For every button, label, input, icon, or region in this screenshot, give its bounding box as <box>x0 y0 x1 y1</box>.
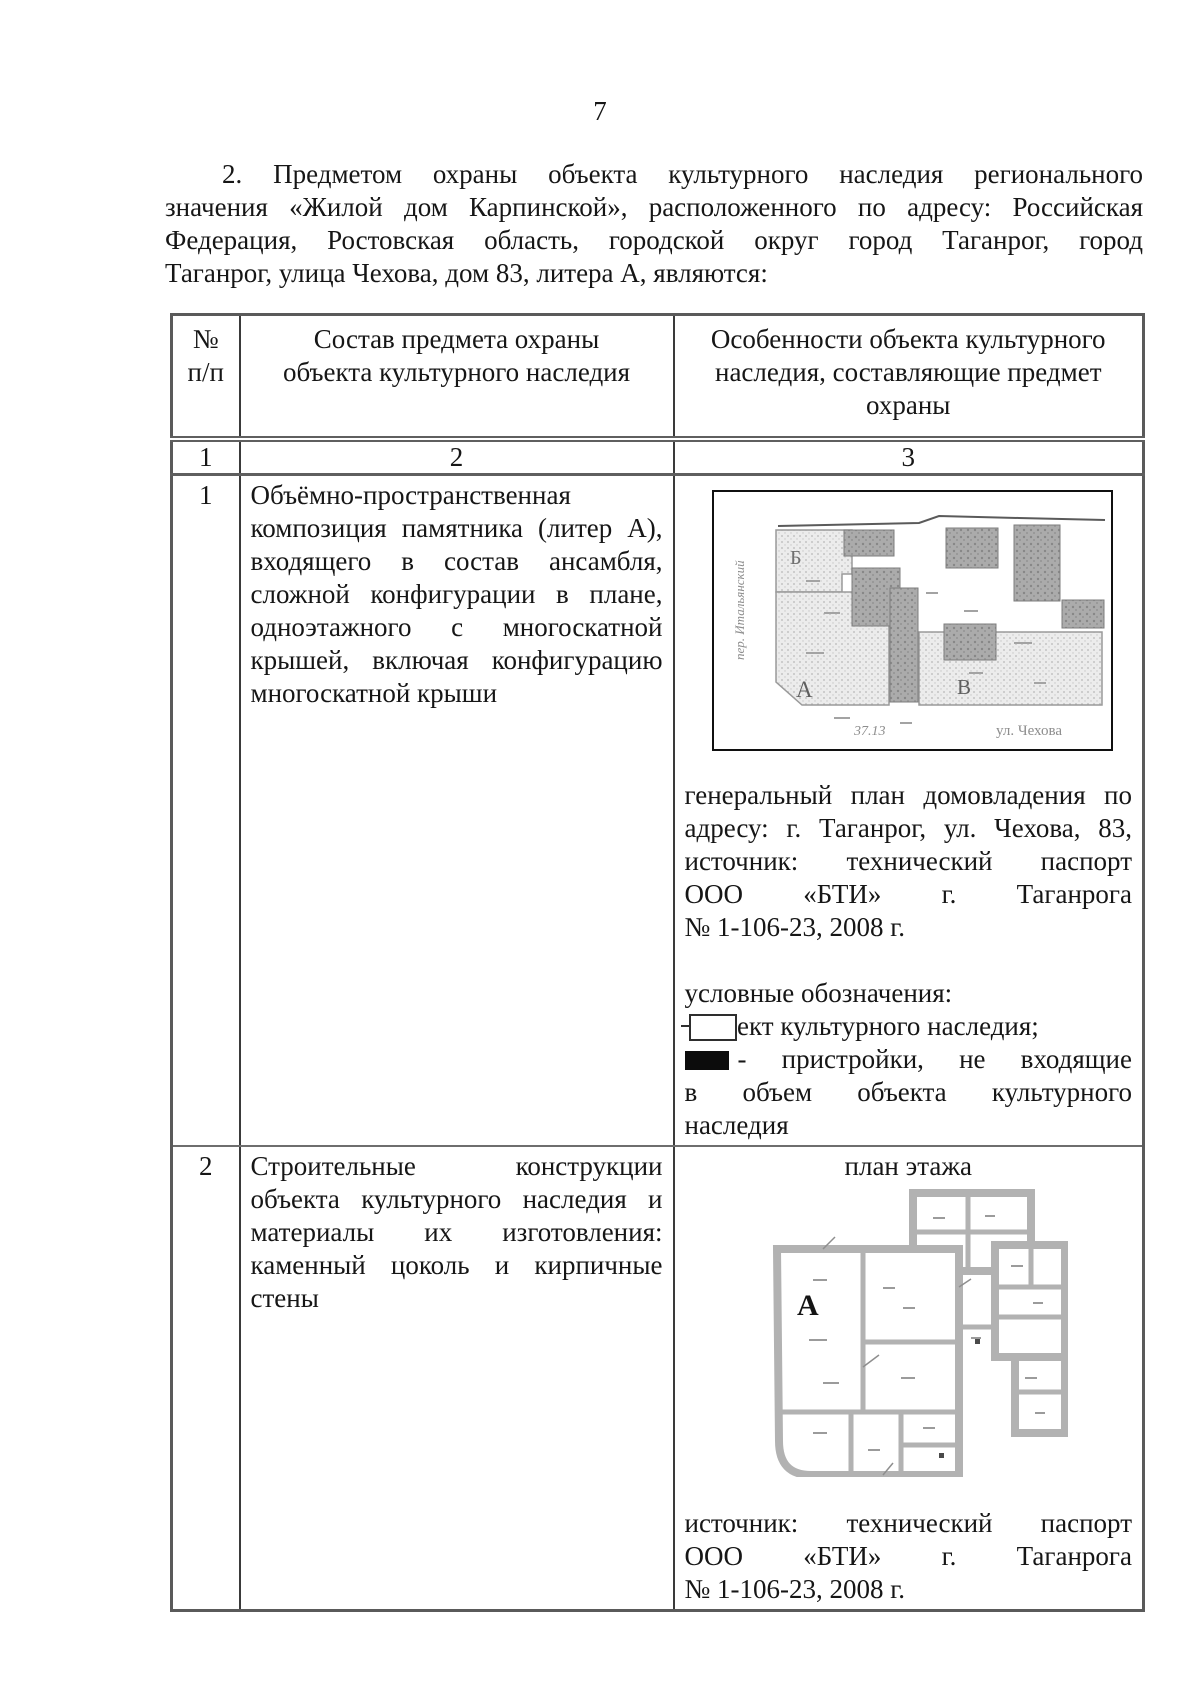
parcel-b <box>776 530 852 592</box>
index-cell: 3 <box>674 439 1144 475</box>
annex-building <box>844 530 894 556</box>
street-label-bottom: ул. Чехова <box>996 723 1062 739</box>
intro-line: Таганрог, улица Чехова, дом 83, литера А… <box>165 257 1143 290</box>
subject-line: композиция памятника (литер А), <box>251 512 663 545</box>
caption-line: № 1-106-23, 2008 г. <box>685 1573 1133 1606</box>
subject-line: материалы их изготовления: <box>251 1216 663 1249</box>
subject-line: объекта культурного наследия и <box>251 1183 663 1216</box>
annex-building <box>946 528 998 568</box>
legend-label-line: наследия <box>685 1109 1133 1142</box>
site-plan-drawing: Б А В пер. Итальянский 37.13 ул. Чехова <box>714 492 1107 745</box>
subject-cell: Объёмно-пространственная композиция памя… <box>240 474 674 1146</box>
table-header-row: № п/п Состав предмета охраны объекта кул… <box>172 315 1144 439</box>
outline-rect-symbol <box>689 1014 737 1041</box>
building-label-a: А <box>796 677 813 702</box>
subject-line: стены <box>251 1282 663 1315</box>
annex-building <box>1062 600 1104 628</box>
legend-title: условные обозначения: <box>685 977 1133 1010</box>
header-cell-number: № п/п <box>172 315 240 439</box>
floor-plan-title: план этажа <box>685 1150 1133 1183</box>
building-label-v: В <box>957 675 971 699</box>
caption-line: ООО «БТИ» г. Таганрога <box>685 1540 1133 1573</box>
subject-line: сложной конфигурации в плане, <box>251 578 663 611</box>
legend-item-heritage: объект культурного наследия; <box>685 1010 1133 1043</box>
subject-line: входящего в состав ансамбля, <box>251 545 663 578</box>
filled-rect-symbol <box>685 1051 729 1070</box>
features-cell: Б А В пер. Итальянский 37.13 ул. Чехова <box>674 474 1144 1146</box>
annex-building <box>944 624 996 660</box>
column-index-row: 1 2 3 <box>172 439 1144 475</box>
subject-line: Объёмно-пространственная <box>251 479 663 512</box>
annex-building <box>890 588 918 702</box>
table-row: 1 Объёмно-пространственная композиция па… <box>172 474 1144 1146</box>
legend-label: - пристройки, не входящие <box>738 1044 1133 1074</box>
subject-line: каменный цоколь и кирпичные <box>251 1249 663 1282</box>
caption-line: источник: технический паспорт <box>685 1507 1133 1540</box>
legend-label: объект культурного наследия; <box>697 1011 1039 1041</box>
plan-caption: генеральный план домовладения по адресу:… <box>685 779 1133 944</box>
row-number: 2 <box>172 1146 240 1611</box>
street-label-left: пер. Итальянский <box>732 559 747 659</box>
annex-building <box>1014 525 1060 601</box>
spacer <box>685 944 1133 977</box>
caption-line: источник: технический паспорт <box>685 845 1133 878</box>
dimension-note: 37.13 <box>853 724 886 739</box>
intro-line: 2. Предметом охраны объекта культурного … <box>165 158 1143 191</box>
right-extension <box>1015 1357 1065 1433</box>
page-number: 7 <box>0 95 1200 128</box>
features-cell: план этажа <box>674 1146 1144 1611</box>
index-cell: 1 <box>172 439 240 475</box>
row-number: 1 <box>172 474 240 1146</box>
index-cell: 2 <box>240 439 674 475</box>
intro-paragraph: 2. Предметом охраны объекта культурного … <box>165 158 1143 290</box>
building-label-a: А <box>797 1289 819 1322</box>
header-cell-subject: Состав предмета охраны объекта культурно… <box>240 315 674 439</box>
caption-line: № 1-106-23, 2008 г. <box>685 911 1133 944</box>
main-block <box>777 1249 959 1475</box>
intro-line: Федерация, Ростовская область, городской… <box>165 224 1143 257</box>
legend-label-line: в объем объекта культурного <box>685 1076 1133 1109</box>
subject-line: многоскатной крыши <box>251 677 663 710</box>
building-label-b: Б <box>790 547 801 569</box>
subject-line: одноэтажного с многоскатной <box>251 611 663 644</box>
protection-subject-table: № п/п Состав предмета охраны объекта кул… <box>170 313 1145 1612</box>
plan-caption: источник: технический паспорт ООО «БТИ» … <box>685 1507 1133 1606</box>
legend-item-annex: - пристройки, не входящие <box>685 1043 1133 1076</box>
subject-line: Строительные конструкции <box>251 1150 663 1183</box>
document-page: 7 2. Предметом охраны объекта культурног… <box>0 0 1200 1698</box>
intro-line: значения «Жилой дом Карпинской», располо… <box>165 191 1143 224</box>
header-cell-features: Особенности объекта культурного наследия… <box>674 315 1144 439</box>
subject-cell: Строительные конструкции объекта культур… <box>240 1146 674 1611</box>
floor-plan-drawing: А <box>763 1187 1068 1477</box>
caption-line: ООО «БТИ» г. Таганрога <box>685 878 1133 911</box>
subject-line: крышей, включая конфигурацию <box>251 644 663 677</box>
table-row: 2 Строительные конструкции объекта культ… <box>172 1146 1144 1611</box>
caption-line: генеральный план домовладения по <box>685 779 1133 812</box>
caption-line: адресу: г. Таганрог, ул. Чехова, 83, <box>685 812 1133 845</box>
site-plan-image: Б А В пер. Итальянский 37.13 ул. Чехова <box>712 490 1113 751</box>
floor-plan-image: А <box>763 1187 1068 1477</box>
